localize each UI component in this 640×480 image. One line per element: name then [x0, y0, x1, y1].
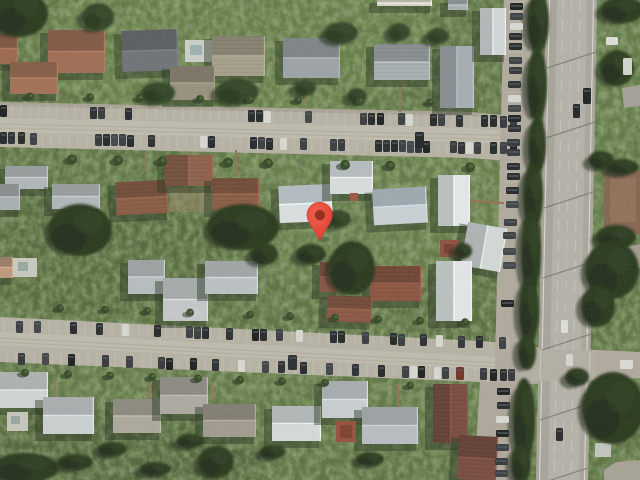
- svg-text:Google: Google: [168, 308, 205, 320]
